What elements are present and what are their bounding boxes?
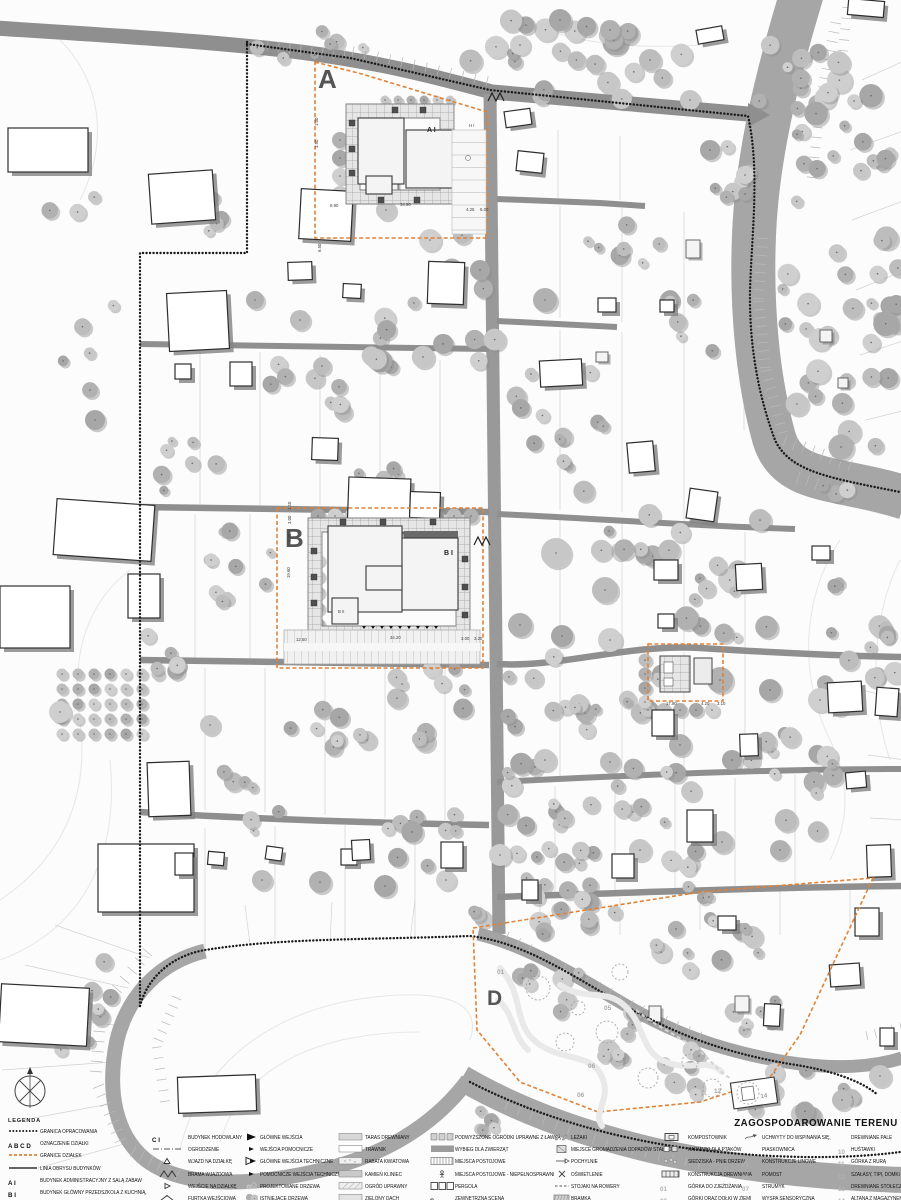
house xyxy=(53,499,159,566)
dimension-label: 19.60 xyxy=(286,567,291,578)
dimension-label: 3.10 xyxy=(717,701,726,706)
dimension-label: 4.60 xyxy=(287,533,292,542)
dimension-label: 3.00 xyxy=(461,636,470,641)
dimension-label: 17.80 xyxy=(666,701,677,706)
house xyxy=(177,1075,260,1118)
plan-title: ZAGOSPODAROWANIE TERENU xyxy=(734,1117,898,1129)
house xyxy=(654,560,682,584)
svg-text:01: 01 xyxy=(497,969,505,976)
house xyxy=(148,170,220,229)
dimension-label: 4.20 xyxy=(701,701,710,706)
house xyxy=(829,963,865,991)
house xyxy=(652,710,678,740)
house xyxy=(866,844,895,881)
dimension-label: 3.50 xyxy=(314,139,319,148)
site-plan-map: A IB I140105060612ABD8.9034.904.255.006.… xyxy=(0,0,901,1200)
house xyxy=(847,0,889,22)
house xyxy=(427,261,469,308)
dimension-label: 3.20 xyxy=(474,636,483,641)
house xyxy=(687,810,717,846)
house xyxy=(230,362,256,390)
dimension-label: 34.20 xyxy=(390,635,401,640)
house xyxy=(539,359,587,391)
house xyxy=(128,574,164,622)
parcel-letter: A xyxy=(318,64,337,94)
svg-text:06: 06 xyxy=(577,1092,585,1099)
house xyxy=(8,128,92,176)
house xyxy=(827,681,867,717)
dimension-label: 4.25 xyxy=(466,207,475,212)
building-code: A I xyxy=(427,127,436,134)
svg-text:05: 05 xyxy=(604,1005,612,1012)
building-code: B I xyxy=(444,550,453,557)
dimension-label: 5.00 xyxy=(480,207,489,212)
dimension-label: 3.00 xyxy=(287,515,292,524)
shed xyxy=(735,996,752,1015)
house xyxy=(147,761,195,821)
house xyxy=(855,908,883,940)
dimension-label: 34.90 xyxy=(400,202,411,207)
house xyxy=(0,586,74,652)
svg-text:06: 06 xyxy=(588,1063,596,1070)
dimension-label: 12.50 xyxy=(296,637,307,642)
site-plan-page: A IB I140105060612ABD8.9034.904.255.006.… xyxy=(0,0,901,1200)
house xyxy=(875,687,901,721)
house xyxy=(167,290,234,355)
parcel-letter: D xyxy=(487,987,502,1010)
svg-text:12: 12 xyxy=(714,1088,722,1095)
house xyxy=(612,854,638,882)
house xyxy=(685,488,721,526)
dimension-label: 8.90 xyxy=(330,203,339,208)
shed xyxy=(686,240,703,261)
house xyxy=(516,151,548,178)
house xyxy=(311,438,342,465)
shed xyxy=(820,330,835,345)
house xyxy=(735,563,767,595)
dimension-label: 1.10 xyxy=(287,501,292,510)
dimension-label: 6.50 xyxy=(317,243,322,252)
house xyxy=(0,984,93,1051)
dimension-label: H I xyxy=(469,123,475,128)
house xyxy=(441,842,467,872)
dimension-label: B II xyxy=(338,609,344,614)
dimension-label: 1.00 xyxy=(314,117,319,126)
house xyxy=(627,441,660,477)
